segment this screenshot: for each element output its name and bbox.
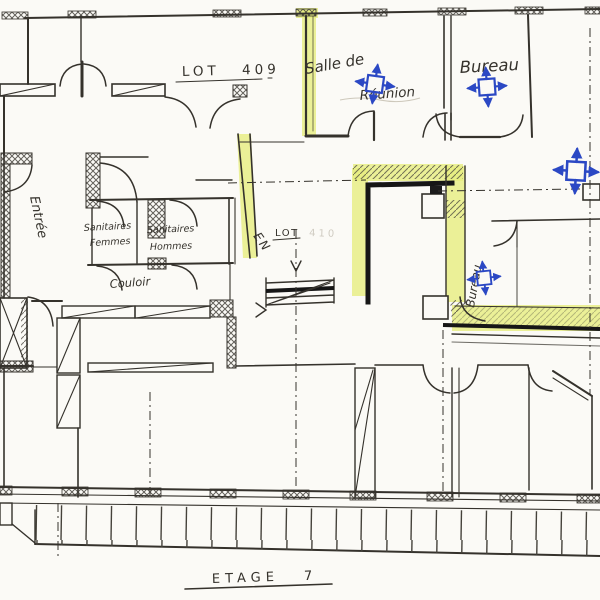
right-edge-frame	[583, 184, 600, 200]
label-bureau-top: Bureau	[459, 55, 519, 77]
hatched-wall-fills	[0, 7, 600, 503]
label-lot-mid: LOT	[275, 228, 299, 239]
floor-plan-drawing: LOT 409 Salle de Réunion Bureau Entrée S…	[0, 0, 600, 600]
axis-dash-lines	[58, 28, 590, 556]
label-entree: Entrée	[26, 195, 50, 240]
label-sanitaires-femmes-1: Sanitaires	[84, 221, 132, 234]
label-sanitaires-femmes-2: Femmes	[90, 236, 131, 249]
facade-mullions	[35, 505, 600, 556]
label-lot-409: LOT 409	[182, 61, 280, 80]
label-lot-mid-faint: 410	[309, 228, 337, 240]
scanned-floor-plan-page: LOT 409 Salle de Réunion Bureau Entrée S…	[0, 0, 600, 600]
label-sanitaires-hommes-1: Sanitaires	[147, 223, 195, 236]
label-couloir: Couloir	[109, 274, 152, 291]
stairs-ramp	[256, 261, 334, 317]
air-diffuser-icon	[553, 148, 599, 194]
direction-chevron	[256, 303, 266, 317]
label-sanitaires-hommes-2: Hommes	[150, 241, 193, 253]
